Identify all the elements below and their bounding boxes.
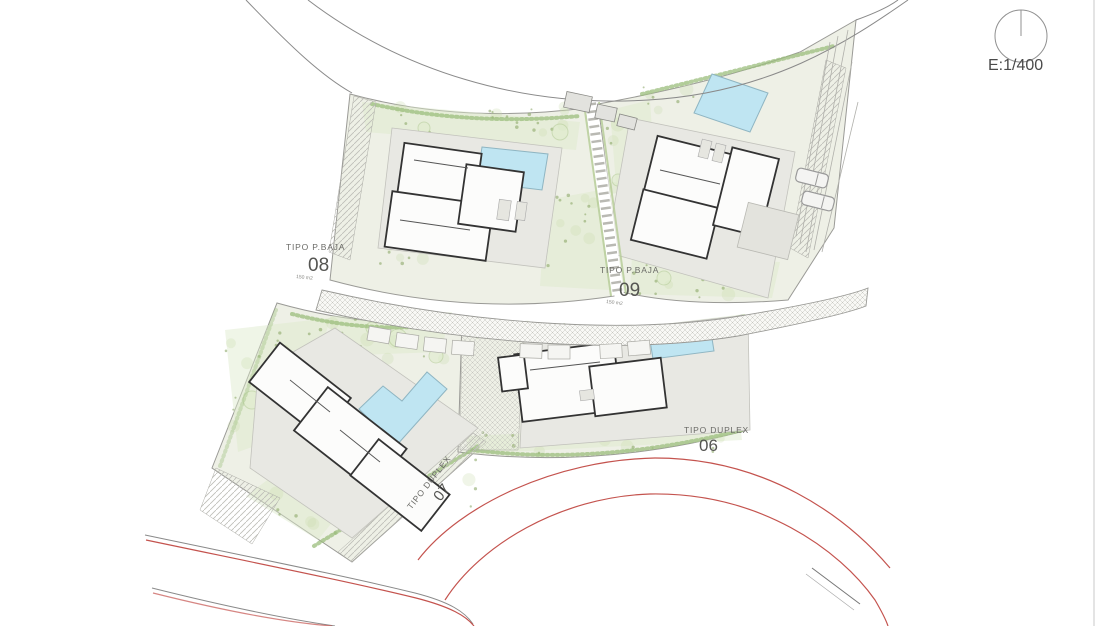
plot-09-area: 150 m2 (606, 299, 624, 307)
plot-09-number: 09 (619, 280, 640, 301)
plot-08-type: TIPO P.BAJA (286, 242, 345, 252)
plot-06-type: TIPO DUPLEX (684, 425, 749, 435)
site-plan-canvas: TIPO P.BAJA 08 150 m2 TIPO P.BAJA 09 150… (0, 0, 1110, 626)
plot-08-area: 150 m2 (296, 274, 313, 282)
plot-06-number: 06 (699, 436, 718, 455)
scale-label: E:1/400 (988, 57, 1043, 74)
plot-09-type: TIPO P.BAJA (600, 265, 659, 275)
site-plan-page: TIPO P.BAJA 08 150 m2 TIPO P.BAJA 09 150… (0, 0, 1110, 626)
north-indicator-icon (995, 10, 1047, 62)
plot-08-number: 08 (308, 255, 329, 276)
